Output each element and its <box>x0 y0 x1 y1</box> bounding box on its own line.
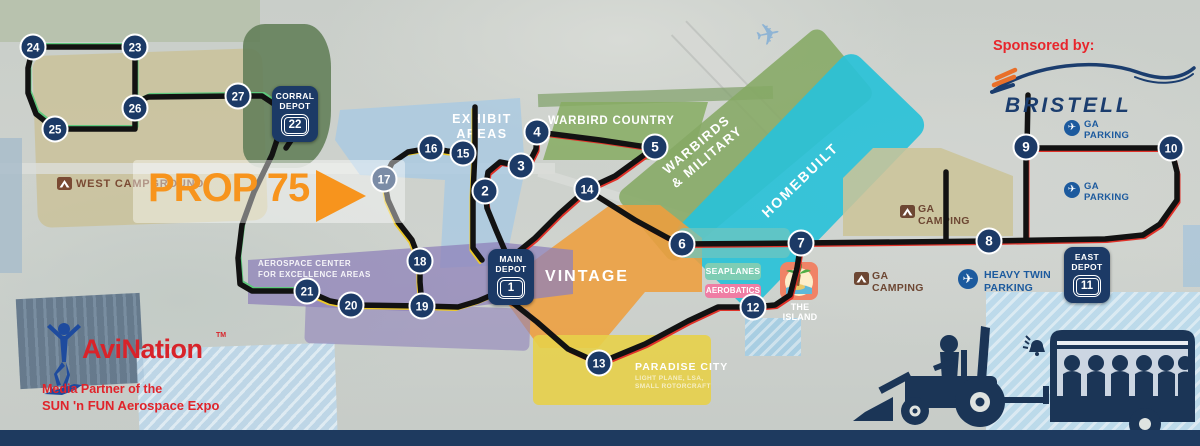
tram-stop-6[interactable]: 6 <box>670 232 695 257</box>
tram-stop-26[interactable]: 26 <box>123 96 148 121</box>
tram-stop-15[interactable]: 15 <box>451 141 476 166</box>
bristell-swoosh-icon <box>985 56 1200 96</box>
tram-stop-2[interactable]: 2 <box>473 179 498 204</box>
svg-text:16: 16 <box>425 144 438 156</box>
trademark-symbol: TM <box>216 332 226 339</box>
media-partner-line2: SUN 'n FUN Aerospace Expo <box>42 398 219 413</box>
tram-route-line <box>589 191 682 244</box>
tram-stop-18[interactable]: 18 <box>408 249 433 274</box>
tram-stop-23[interactable]: 23 <box>123 35 148 60</box>
svg-text:24: 24 <box>27 43 40 55</box>
svg-text:7: 7 <box>797 236 805 251</box>
route-accent-line <box>601 310 755 366</box>
tram-stop-7[interactable]: 7 <box>789 231 814 256</box>
media-partner-line1: Media Partner of the <box>42 382 162 396</box>
svg-text:21: 21 <box>301 287 314 299</box>
tram-stop-21[interactable]: 21 <box>295 279 320 304</box>
svg-text:4: 4 <box>533 125 541 140</box>
tram-stop-16[interactable]: 16 <box>419 136 444 161</box>
svg-text:3: 3 <box>517 159 525 174</box>
svg-text:15: 15 <box>457 149 470 161</box>
svg-text:23: 23 <box>129 43 142 55</box>
svg-text:5: 5 <box>651 140 659 155</box>
corral-depot-number: 22 <box>281 114 309 136</box>
svg-text:2: 2 <box>481 184 489 199</box>
tram-route-line <box>599 307 753 363</box>
svg-text:19: 19 <box>416 302 429 314</box>
main-depot-number: 1 <box>497 277 525 299</box>
sponsor-block: Sponsored by: BRISTELL <box>985 38 1200 122</box>
prop-75-arrow-icon <box>316 170 366 222</box>
svg-text:12: 12 <box>747 303 760 315</box>
svg-text:6: 6 <box>678 237 686 252</box>
svg-text:26: 26 <box>129 104 142 116</box>
sun-n-fun-tram-route-map: ✈ WEST CAMPGROUND EXHIBITAREAS WARBIRD C… <box>0 0 1200 446</box>
svg-text:14: 14 <box>581 185 594 197</box>
tram-stop-9[interactable]: 9 <box>1014 135 1039 160</box>
svg-text:27: 27 <box>232 92 245 104</box>
prop-75-label: PROP 75 <box>148 166 309 211</box>
tram-stop-3[interactable]: 3 <box>509 154 534 179</box>
tram-stop-8[interactable]: 8 <box>977 229 1002 254</box>
svg-text:9: 9 <box>1022 140 1030 155</box>
tram-stop-5[interactable]: 5 <box>643 135 668 160</box>
svg-text:20: 20 <box>345 301 358 313</box>
tram-stop-20[interactable]: 20 <box>339 293 364 318</box>
svg-text:13: 13 <box>593 359 606 371</box>
svg-text:10: 10 <box>1165 144 1178 156</box>
tram-stop-10[interactable]: 10 <box>1159 136 1184 161</box>
tram-stop-14[interactable]: 14 <box>575 177 600 202</box>
tram-stop-24[interactable]: 24 <box>21 35 46 60</box>
main-depot-badge[interactable]: MAIN DEPOT 1 <box>488 249 534 305</box>
avination-logo: AviNation <box>82 334 203 365</box>
tram-stop-27[interactable]: 27 <box>226 84 251 109</box>
corral-depot-badge[interactable]: CORRAL DEPOT 22 <box>272 86 318 142</box>
east-depot-badge[interactable]: EAST DEPOT 11 <box>1064 247 1110 303</box>
east-depot-number: 11 <box>1073 275 1101 297</box>
tram-route-line <box>307 291 422 306</box>
svg-text:8: 8 <box>985 234 993 249</box>
tram-route-line <box>493 295 599 363</box>
footer-bar <box>0 430 1200 446</box>
sponsored-by-label: Sponsored by: <box>993 38 1095 54</box>
bristell-logo: BRISTELL <box>1005 94 1132 118</box>
tram-stop-25[interactable]: 25 <box>43 117 68 142</box>
tram-stop-12[interactable]: 12 <box>741 295 766 320</box>
media-partner-block: AviNation TM Media Partner of the SUN 'n… <box>40 318 270 418</box>
tram-illustration <box>845 300 1200 431</box>
svg-text:18: 18 <box>414 257 427 269</box>
tram-stop-13[interactable]: 13 <box>587 351 612 376</box>
tram-stop-4[interactable]: 4 <box>525 120 550 145</box>
tram-route-line <box>537 132 655 147</box>
svg-text:25: 25 <box>49 125 62 137</box>
tram-stop-19[interactable]: 19 <box>410 294 435 319</box>
